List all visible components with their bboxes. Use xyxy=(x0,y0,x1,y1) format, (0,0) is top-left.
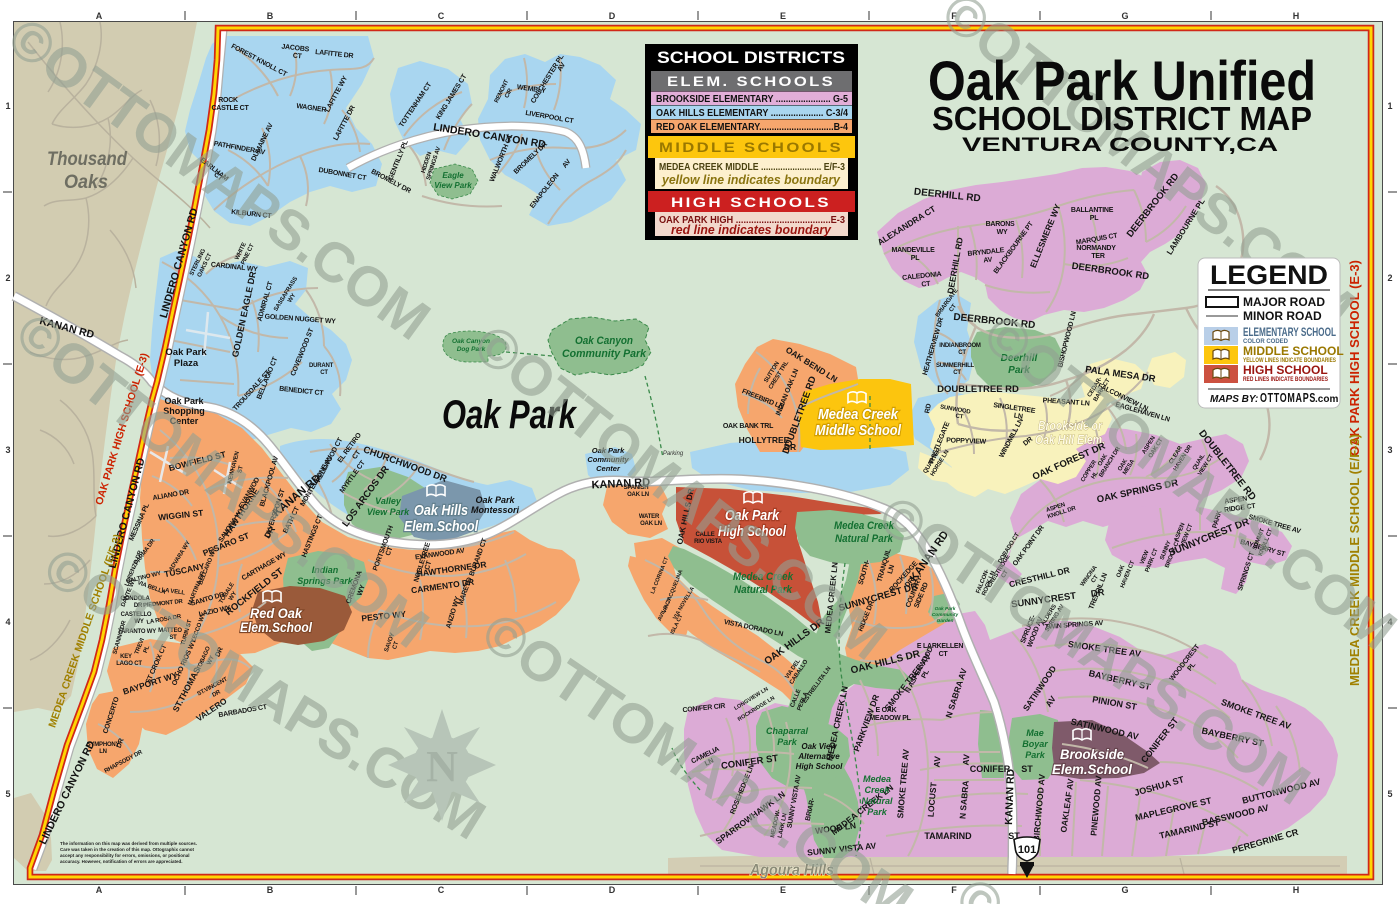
svg-text:MIDDLE SCHOOLS: MIDDLE SCHOOLS xyxy=(659,139,843,155)
svg-text:OAK BANK TRL: OAK BANK TRL xyxy=(723,423,774,430)
svg-text:CT: CT xyxy=(953,370,961,376)
svg-text:Oak Canyon: Oak Canyon xyxy=(575,335,633,347)
svg-text:Oak Park: Oak Park xyxy=(165,347,207,358)
svg-text:RED LINES INDICATE BOUNDARIES: RED LINES INDICATE BOUNDARIES xyxy=(1243,377,1328,383)
svg-text:TAMARIND: TAMARIND xyxy=(924,831,972,841)
svg-text:OTTOMAPS: OTTOMAPS xyxy=(1260,390,1316,405)
svg-text:B: B xyxy=(267,11,274,21)
svg-text:MEDEA CREEK MIDDLE ...........: MEDEA CREEK MIDDLE .....................… xyxy=(659,162,845,173)
svg-text:A: A xyxy=(96,11,103,21)
svg-text:KANAN RD: KANAN RD xyxy=(1003,768,1017,825)
svg-text:AV: AV xyxy=(983,257,993,265)
svg-text:5: 5 xyxy=(1387,789,1392,799)
svg-text:ST: ST xyxy=(1021,764,1033,774)
svg-text:MAPS BY:: MAPS BY: xyxy=(1210,394,1258,405)
svg-text:Middle School: Middle School xyxy=(815,422,902,439)
svg-text:F: F xyxy=(951,885,957,895)
svg-text:C: C xyxy=(438,11,445,21)
svg-text:View Park: View Park xyxy=(434,181,472,190)
svg-text:.com: .com xyxy=(1315,394,1338,405)
svg-text:LEGEND: LEGEND xyxy=(1210,260,1328,290)
svg-text:2: 2 xyxy=(5,273,10,283)
svg-text:101: 101 xyxy=(1018,844,1036,856)
svg-text:CT: CT xyxy=(939,651,949,658)
svg-text:SCHOOL DISTRICT MAP: SCHOOL DISTRICT MAP xyxy=(932,100,1312,137)
svg-text:G: G xyxy=(1121,885,1128,895)
svg-text:OAK LN: OAK LN xyxy=(640,521,662,527)
svg-text:D: D xyxy=(609,885,616,895)
svg-text:CASTLE CT: CASTLE CT xyxy=(211,105,249,112)
svg-text:Natural: Natural xyxy=(861,796,893,806)
svg-text:red line indicates boundary: red line indicates boundary xyxy=(671,223,832,237)
svg-text:WY: WY xyxy=(997,229,1008,236)
svg-text:MIDDLE SCHOOL: MIDDLE SCHOOL xyxy=(1243,344,1344,358)
svg-text:accept any responsibility f: accept any responsibility for errors, om… xyxy=(60,853,190,858)
svg-text:Chaparral: Chaparral xyxy=(766,726,809,736)
svg-text:Brookside: Brookside xyxy=(1060,746,1124,762)
svg-text:PL: PL xyxy=(911,255,920,262)
svg-text:View Park: View Park xyxy=(367,507,410,517)
svg-text:yellow line indicates boundary: yellow line indicates boundary xyxy=(661,173,841,187)
svg-text:D: D xyxy=(609,11,616,21)
svg-text:DURANT: DURANT xyxy=(309,363,334,369)
svg-text:Elem.School: Elem.School xyxy=(404,519,479,535)
svg-text:2: 2 xyxy=(1387,273,1392,283)
svg-text:Plaza: Plaza xyxy=(174,358,199,369)
svg-text:BROOKSIDE ELEMENTARY .........: BROOKSIDE ELEMENTARY ...................… xyxy=(656,94,848,105)
svg-text:KEY: KEY xyxy=(120,654,132,660)
svg-text:CT: CT xyxy=(958,350,966,356)
svg-text:Garden: Garden xyxy=(937,618,954,624)
svg-text:3: 3 xyxy=(1387,445,1392,455)
svg-text:H: H xyxy=(1293,885,1300,895)
svg-text:Oak View: Oak View xyxy=(801,742,837,751)
svg-text:High School: High School xyxy=(796,762,843,771)
svg-text:4: 4 xyxy=(5,617,10,627)
svg-text:CT: CT xyxy=(320,370,328,376)
svg-text:LAGO CT: LAGO CT xyxy=(116,661,142,667)
svg-text:BALLANTINE: BALLANTINE xyxy=(1071,207,1114,214)
svg-text:WATER: WATER xyxy=(639,514,660,520)
svg-text:VENTURA COUNTY,CA: VENTURA COUNTY,CA xyxy=(962,135,1278,156)
svg-text:E OAK: E OAK xyxy=(876,707,897,714)
svg-text:PL: PL xyxy=(1090,215,1099,222)
svg-text:E LARKELLEN: E LARKELLEN xyxy=(917,643,963,650)
svg-text:HOLLYTREE: HOLLYTREE xyxy=(739,435,790,445)
svg-text:5: 5 xyxy=(5,789,10,799)
svg-text:H: H xyxy=(1293,11,1300,21)
svg-text:MINOR ROAD: MINOR ROAD xyxy=(1243,309,1322,323)
svg-text:Community: Community xyxy=(932,612,959,618)
svg-text:Park: Park xyxy=(1025,750,1046,760)
svg-text:DOUBLETREE RD: DOUBLETREE RD xyxy=(937,384,1019,395)
svg-text:Oak Hills: Oak Hills xyxy=(414,503,468,519)
svg-text:Park: Park xyxy=(777,737,798,747)
svg-text:Boyar: Boyar xyxy=(1022,739,1048,749)
svg-text:1: 1 xyxy=(5,101,10,111)
svg-text:Oaks: Oaks xyxy=(64,172,108,193)
svg-text:Medea Creek: Medea Creek xyxy=(818,406,899,423)
svg-text:C: C xyxy=(438,885,445,895)
svg-text:MAJOR ROAD: MAJOR ROAD xyxy=(1243,295,1325,309)
svg-text:Red Oak: Red Oak xyxy=(250,606,303,621)
svg-text:POPPYVIEW: POPPYVIEW xyxy=(946,437,987,445)
svg-text:E: E xyxy=(780,11,786,21)
svg-text:Oak Park: Oak Park xyxy=(935,606,956,612)
svg-text:TER: TER xyxy=(1091,253,1104,260)
svg-text:Park: Park xyxy=(867,807,888,817)
svg-text:N: N xyxy=(426,742,458,791)
svg-text:RED OAK ELEMENTARY............: RED OAK ELEMENTARY......................… xyxy=(656,122,848,133)
svg-text:HIGH SCHOOL: HIGH SCHOOL xyxy=(1243,363,1328,377)
svg-text:NORMANDY: NORMANDY xyxy=(1076,245,1116,252)
svg-text:Eagle: Eagle xyxy=(442,171,464,180)
svg-text:The information on this map wa: The information on this map was derived … xyxy=(60,841,197,846)
svg-text:B: B xyxy=(267,885,274,895)
svg-text:AV: AV xyxy=(932,755,943,767)
svg-text:Mae: Mae xyxy=(1026,728,1044,738)
svg-text:OAK HILLS ELEMENTARY .........: OAK HILLS ELEMENTARY ...................… xyxy=(656,108,848,119)
svg-text:SUMMERHILL: SUMMERHILL xyxy=(936,363,975,369)
svg-text:Valley: Valley xyxy=(375,496,402,506)
svg-text:1: 1 xyxy=(1387,101,1392,111)
svg-text:G: G xyxy=(1121,11,1128,21)
svg-text:HIGH SCHOOLS: HIGH SCHOOLS xyxy=(671,194,831,210)
svg-text:ELEM. SCHOOLS: ELEM. SCHOOLS xyxy=(667,73,835,89)
svg-text:LN: LN xyxy=(99,749,107,755)
svg-text:MEADOW PL: MEADOW PL xyxy=(869,715,911,722)
svg-text:3: 3 xyxy=(5,445,10,455)
svg-text:Community Park: Community Park xyxy=(562,348,647,360)
svg-text:Montessori: Montessori xyxy=(471,505,520,515)
svg-text:E: E xyxy=(780,885,786,895)
svg-text:Elem.School: Elem.School xyxy=(1052,761,1133,777)
svg-text:SCHOOL DISTRICTS: SCHOOL DISTRICTS xyxy=(657,48,845,67)
svg-text:Thousand: Thousand xyxy=(47,149,127,170)
svg-text:Elem.School: Elem.School xyxy=(240,620,312,635)
svg-text:A: A xyxy=(96,885,103,895)
svg-text:Medea: Medea xyxy=(863,774,891,784)
svg-text:Oak Park: Oak Park xyxy=(475,495,515,505)
svg-text:Care was taken in the creation: Care was taken in the creation of this m… xyxy=(60,847,195,852)
svg-text:ROCK: ROCK xyxy=(218,97,238,104)
svg-text:ELEMENTARY SCHOOL: ELEMENTARY SCHOOL xyxy=(1243,325,1336,339)
svg-text:Creek: Creek xyxy=(864,785,890,795)
svg-text:Alternative: Alternative xyxy=(797,752,840,761)
svg-text:accuracy. However, notificatio: accuracy. However, notification of error… xyxy=(60,859,182,864)
svg-text:MANDEVILLE: MANDEVILLE xyxy=(892,247,936,254)
svg-text:BARONS: BARONS xyxy=(986,221,1015,228)
